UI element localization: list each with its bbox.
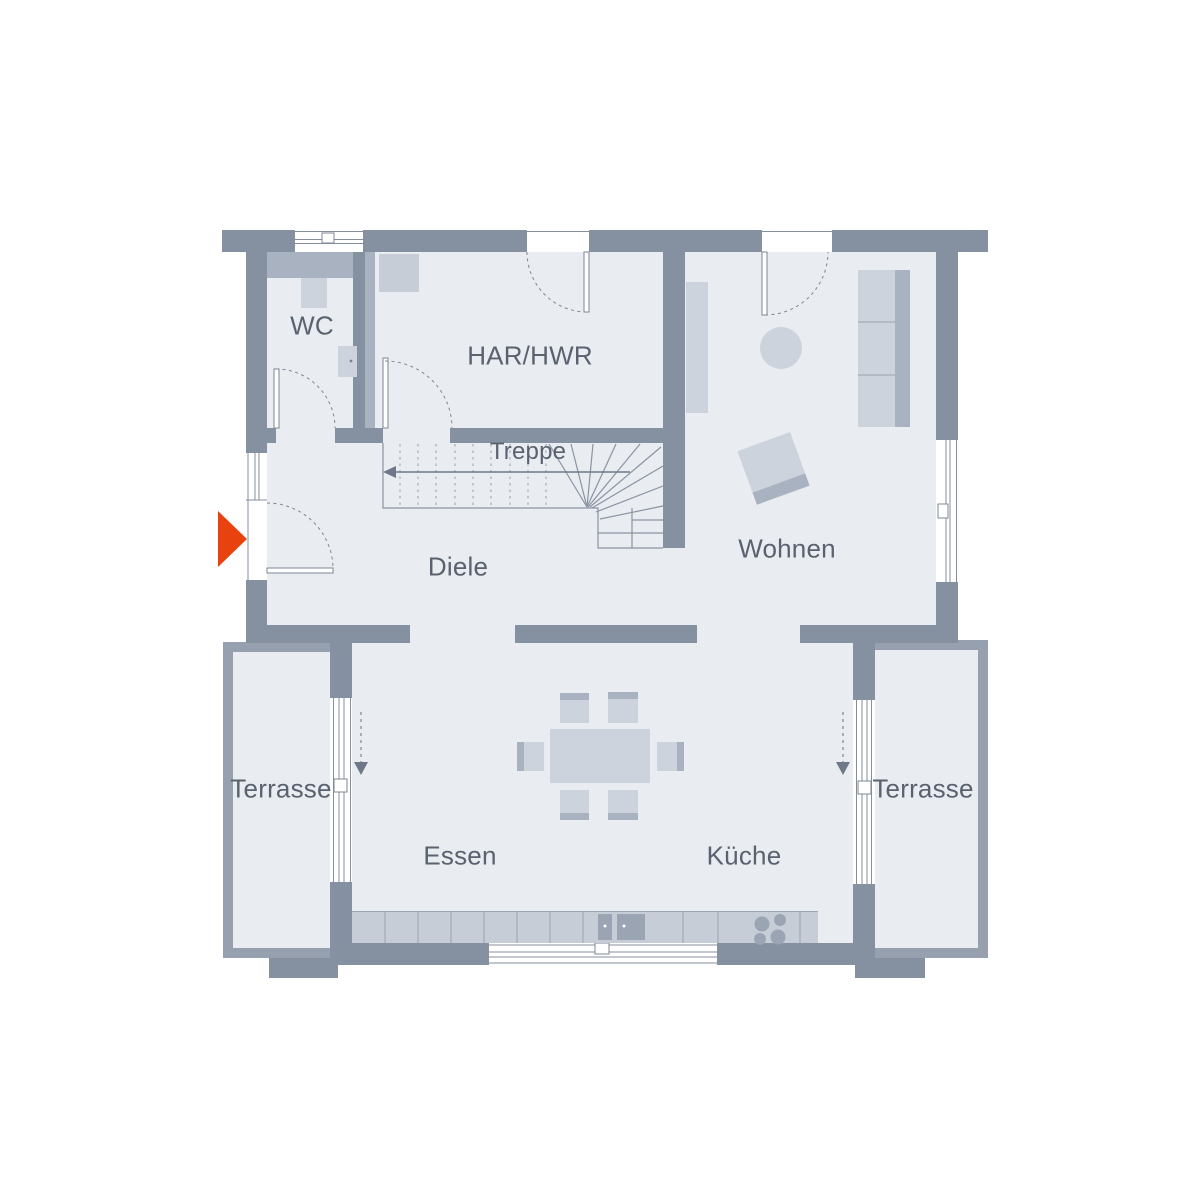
room-label-wc: WC <box>290 311 334 342</box>
wc-window <box>295 230 363 252</box>
wohnen-window <box>936 440 958 582</box>
dining-chair <box>517 742 544 771</box>
dining-chair <box>608 692 638 723</box>
sliding-door-left <box>330 698 352 882</box>
kitchen-window <box>489 943 717 965</box>
room-label-terrasse-left: Terrasse <box>230 774 331 805</box>
wc-installation-wall <box>267 252 353 278</box>
dining-chair <box>608 790 638 820</box>
room-label-essen: Essen <box>423 841 496 872</box>
toilet <box>301 278 327 308</box>
dining-chair <box>560 693 589 723</box>
washbasin <box>338 346 357 377</box>
kitchen-sink <box>598 914 645 940</box>
dining-table <box>550 729 650 783</box>
dining-chair <box>657 742 684 771</box>
round-table <box>760 327 802 369</box>
har-appliance <box>379 254 419 292</box>
sideboard <box>686 282 708 413</box>
kitchen-counter <box>352 911 818 945</box>
room-label-treppe: Treppe <box>490 438 566 466</box>
floor-plan-drawing <box>0 0 1200 1200</box>
room-label-har-hwr: HAR/HWR <box>467 341 593 372</box>
dining-chair <box>560 790 589 820</box>
entrance-arrow-icon <box>218 511 247 567</box>
sofa <box>858 270 910 427</box>
room-label-diele: Diele <box>428 552 488 583</box>
room-label-wohnen: Wohnen <box>738 534 836 565</box>
room-label-kueche: Küche <box>707 841 782 872</box>
room-label-terrasse-right: Terrasse <box>872 774 973 805</box>
floor-plan: WC HAR/HWR Treppe Diele Wohnen Terrasse … <box>0 0 1200 1200</box>
